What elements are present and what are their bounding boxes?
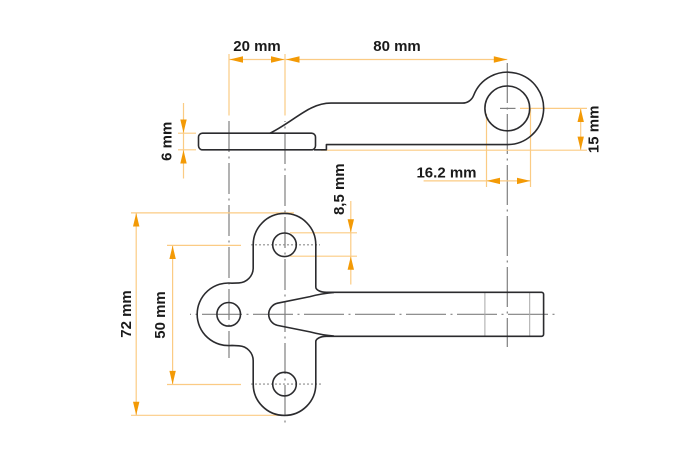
svg-text:72 mm: 72 mm [118, 290, 135, 338]
svg-text:15 mm: 15 mm [585, 106, 602, 154]
svg-text:20 mm: 20 mm [233, 38, 281, 55]
svg-text:8,5 mm: 8,5 mm [331, 163, 348, 215]
svg-text:16.2 mm: 16.2 mm [416, 165, 476, 182]
svg-text:6 mm: 6 mm [158, 122, 175, 161]
svg-text:80 mm: 80 mm [373, 38, 421, 55]
svg-text:50 mm: 50 mm [152, 291, 169, 339]
